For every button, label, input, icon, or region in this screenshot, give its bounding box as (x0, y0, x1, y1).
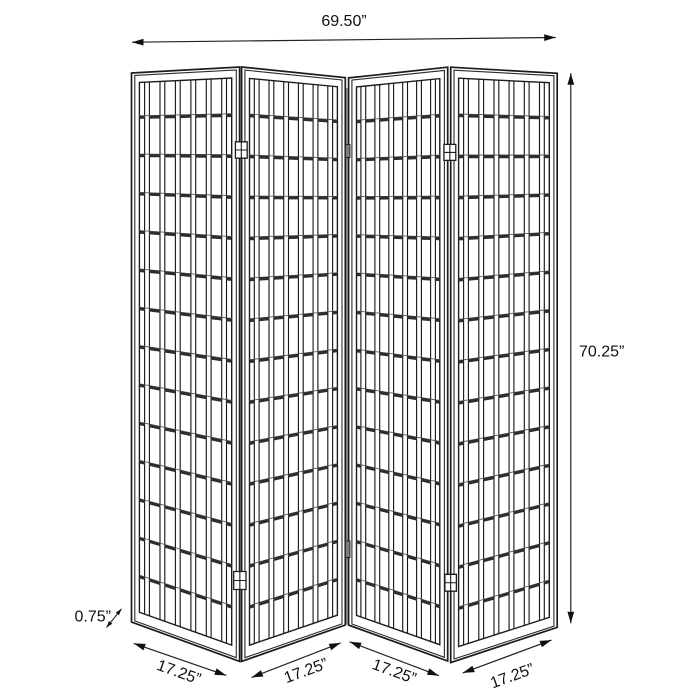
svg-text:0.75”: 0.75” (75, 609, 111, 626)
svg-text:69.50”: 69.50” (321, 13, 366, 30)
svg-text:70.25”: 70.25” (579, 343, 624, 360)
